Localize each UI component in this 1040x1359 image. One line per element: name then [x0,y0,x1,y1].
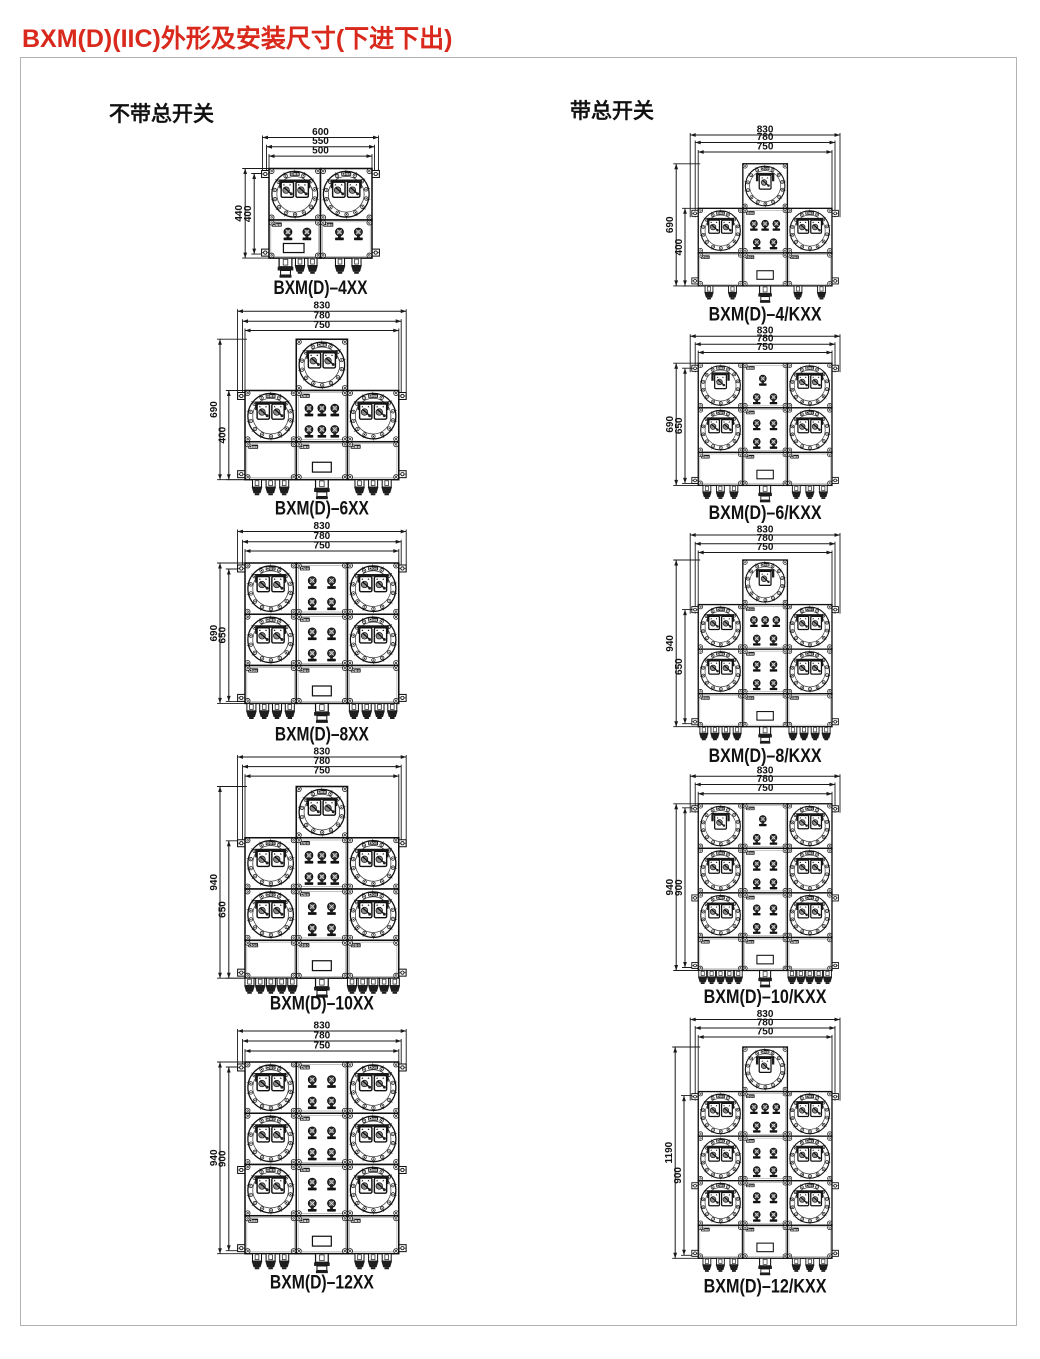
svg-text:BXM(D)–4/KXX: BXM(D)–4/KXX [709,305,822,326]
svg-text:650: 650 [218,626,229,643]
svg-text:400: 400 [218,426,229,443]
svg-text:BXM(D)–12XX: BXM(D)–12XX [270,1273,374,1294]
svg-text:BXM(D)–8XX: BXM(D)–8XX [275,725,369,746]
svg-text:750: 750 [757,141,774,152]
svg-text:900: 900 [218,1150,229,1167]
svg-text:940: 940 [665,635,676,652]
svg-text:650: 650 [674,658,685,675]
svg-text:750: 750 [757,342,774,353]
svg-text:750: 750 [314,766,331,777]
svg-text:400: 400 [243,205,254,222]
svg-text:690: 690 [209,401,220,418]
svg-text:750: 750 [757,542,774,553]
svg-text:750: 750 [757,1026,774,1037]
svg-text:650: 650 [218,901,229,918]
svg-text:BXM(D)–10/KXX: BXM(D)–10/KXX [704,987,827,1008]
svg-text:BXM(D)–4XX: BXM(D)–4XX [274,278,368,299]
svg-text:690: 690 [665,216,676,233]
svg-text:BXM(D)–6XX: BXM(D)–6XX [275,499,369,520]
svg-text:BXM(D)–12/KXX: BXM(D)–12/KXX [704,1277,827,1298]
svg-text:500: 500 [312,146,329,157]
svg-text:940: 940 [209,874,220,891]
svg-text:BXM(D)–10XX: BXM(D)–10XX [270,994,374,1015]
svg-text:750: 750 [314,1040,331,1051]
svg-text:650: 650 [674,417,685,434]
svg-text:BXM(D)–6/KXX: BXM(D)–6/KXX [709,503,822,524]
svg-text:1190: 1190 [664,1141,675,1163]
svg-text:900: 900 [674,879,685,896]
svg-text:750: 750 [314,320,331,331]
svg-text:750: 750 [757,783,774,794]
svg-text:750: 750 [314,540,331,551]
svg-text:400: 400 [674,238,685,255]
svg-text:BXM(D)–8/KXX: BXM(D)–8/KXX [709,746,822,767]
svg-text:900: 900 [673,1167,684,1184]
